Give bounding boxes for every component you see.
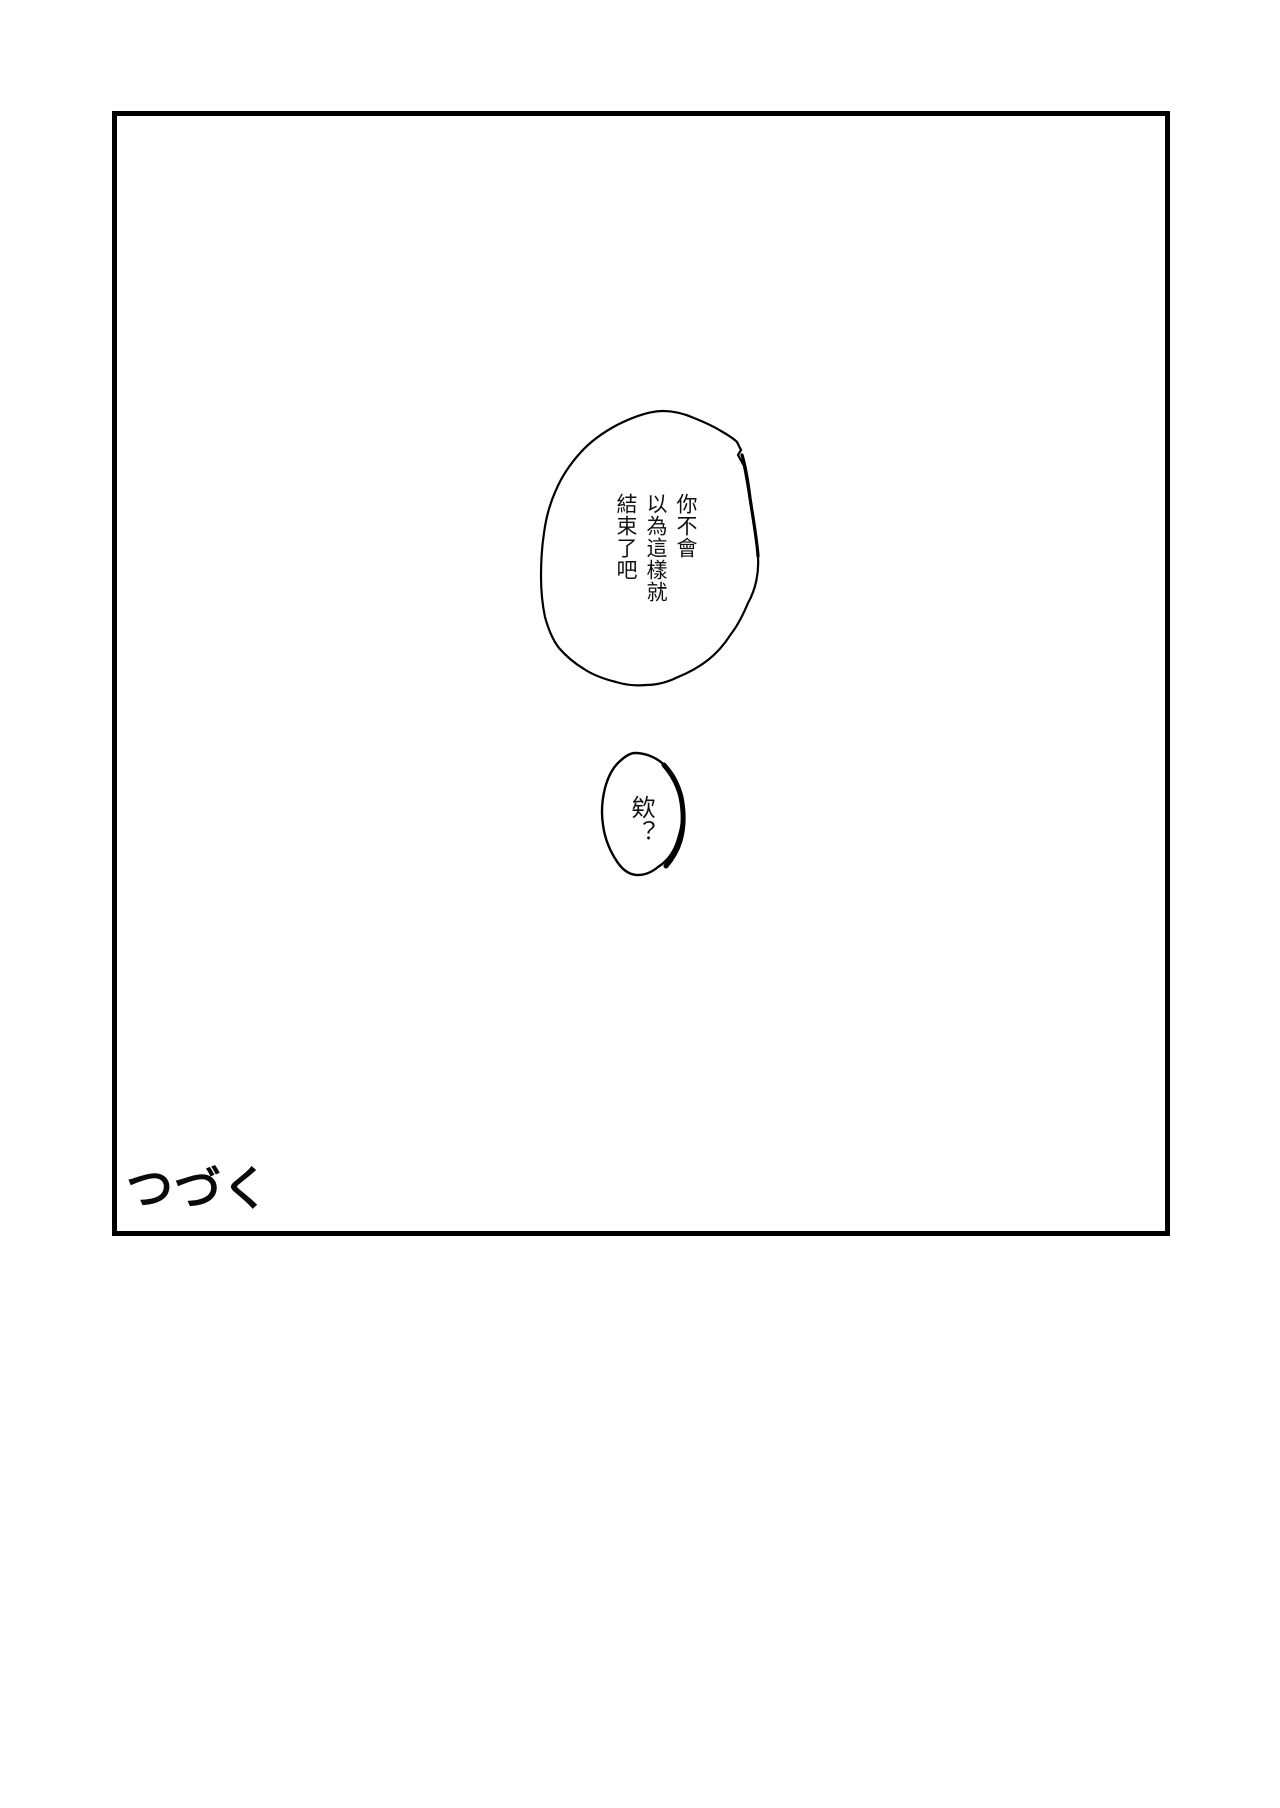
large-bubble-text: 你不會 以為這樣就 結束了吧	[609, 493, 701, 623]
small-bubble-text: 欸？	[626, 795, 656, 855]
bubble-text-line: 欸？	[626, 795, 656, 855]
bubble-text-line: 結束了吧	[611, 493, 641, 623]
to-be-continued-label: つづく	[126, 1166, 270, 1213]
bubble-text-line: 你不會	[671, 493, 701, 623]
manga-page: 你不會 以為這樣就 結束了吧 欸？ つづく	[0, 0, 1280, 1808]
bubble-text-line: 以為這樣就	[641, 493, 671, 623]
panel-artwork	[0, 0, 1280, 1808]
